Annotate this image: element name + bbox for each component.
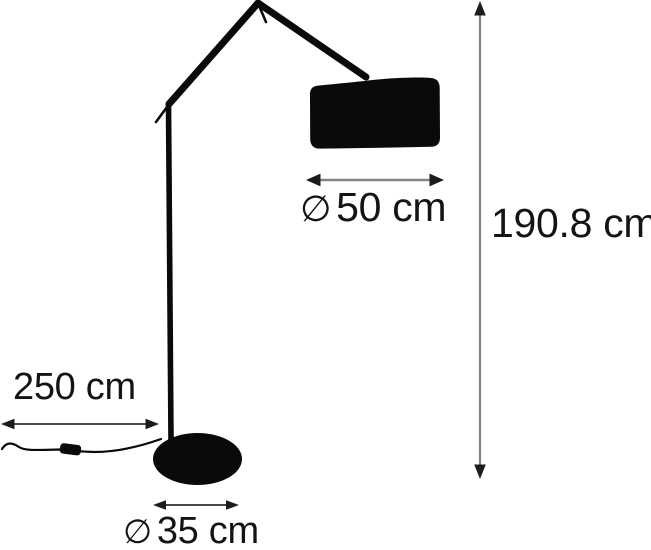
- diameter-symbol-icon: ∅: [300, 188, 331, 230]
- power-plug: [59, 443, 81, 456]
- power-cord: [2, 439, 161, 452]
- arrow-right-icon: [146, 419, 160, 429]
- arrow-down-icon: [474, 465, 486, 480]
- arrow-left-icon: [153, 500, 166, 510]
- cord-length-value: 250 cm: [13, 366, 136, 408]
- height-label: 190.8 cm: [491, 203, 651, 244]
- lamp-drawing: [0, 0, 651, 550]
- cord-length-label: 250 cm: [13, 368, 136, 406]
- shade-diameter-value: 50 cm: [336, 184, 446, 230]
- lampshade: [310, 78, 440, 149]
- cord-length-dimension: [1, 419, 159, 429]
- height-value: 190.8 cm: [491, 200, 651, 246]
- lamp-pole: [169, 104, 172, 440]
- base-diameter-value: 35 cm: [157, 510, 259, 550]
- floor-lamp: [2, 3, 440, 485]
- arrow-right-icon: [226, 500, 239, 510]
- arrow-left-icon: [1, 419, 15, 429]
- height-dimension: [474, 1, 486, 479]
- shade-diameter-label: ∅50 cm: [300, 187, 446, 228]
- arrow-up-icon: [474, 1, 486, 16]
- base-diameter-dimension: [153, 500, 239, 510]
- base-diameter-label: ∅35 cm: [123, 512, 259, 550]
- arrow-left-icon: [306, 174, 321, 187]
- lamp-base: [153, 433, 242, 485]
- elbow-joint-stub: [156, 107, 167, 122]
- lamp-dimension-diagram: ∅50 cm 190.8 cm 250 cm ∅35 cm: [0, 0, 651, 550]
- diameter-symbol-icon: ∅: [123, 512, 152, 550]
